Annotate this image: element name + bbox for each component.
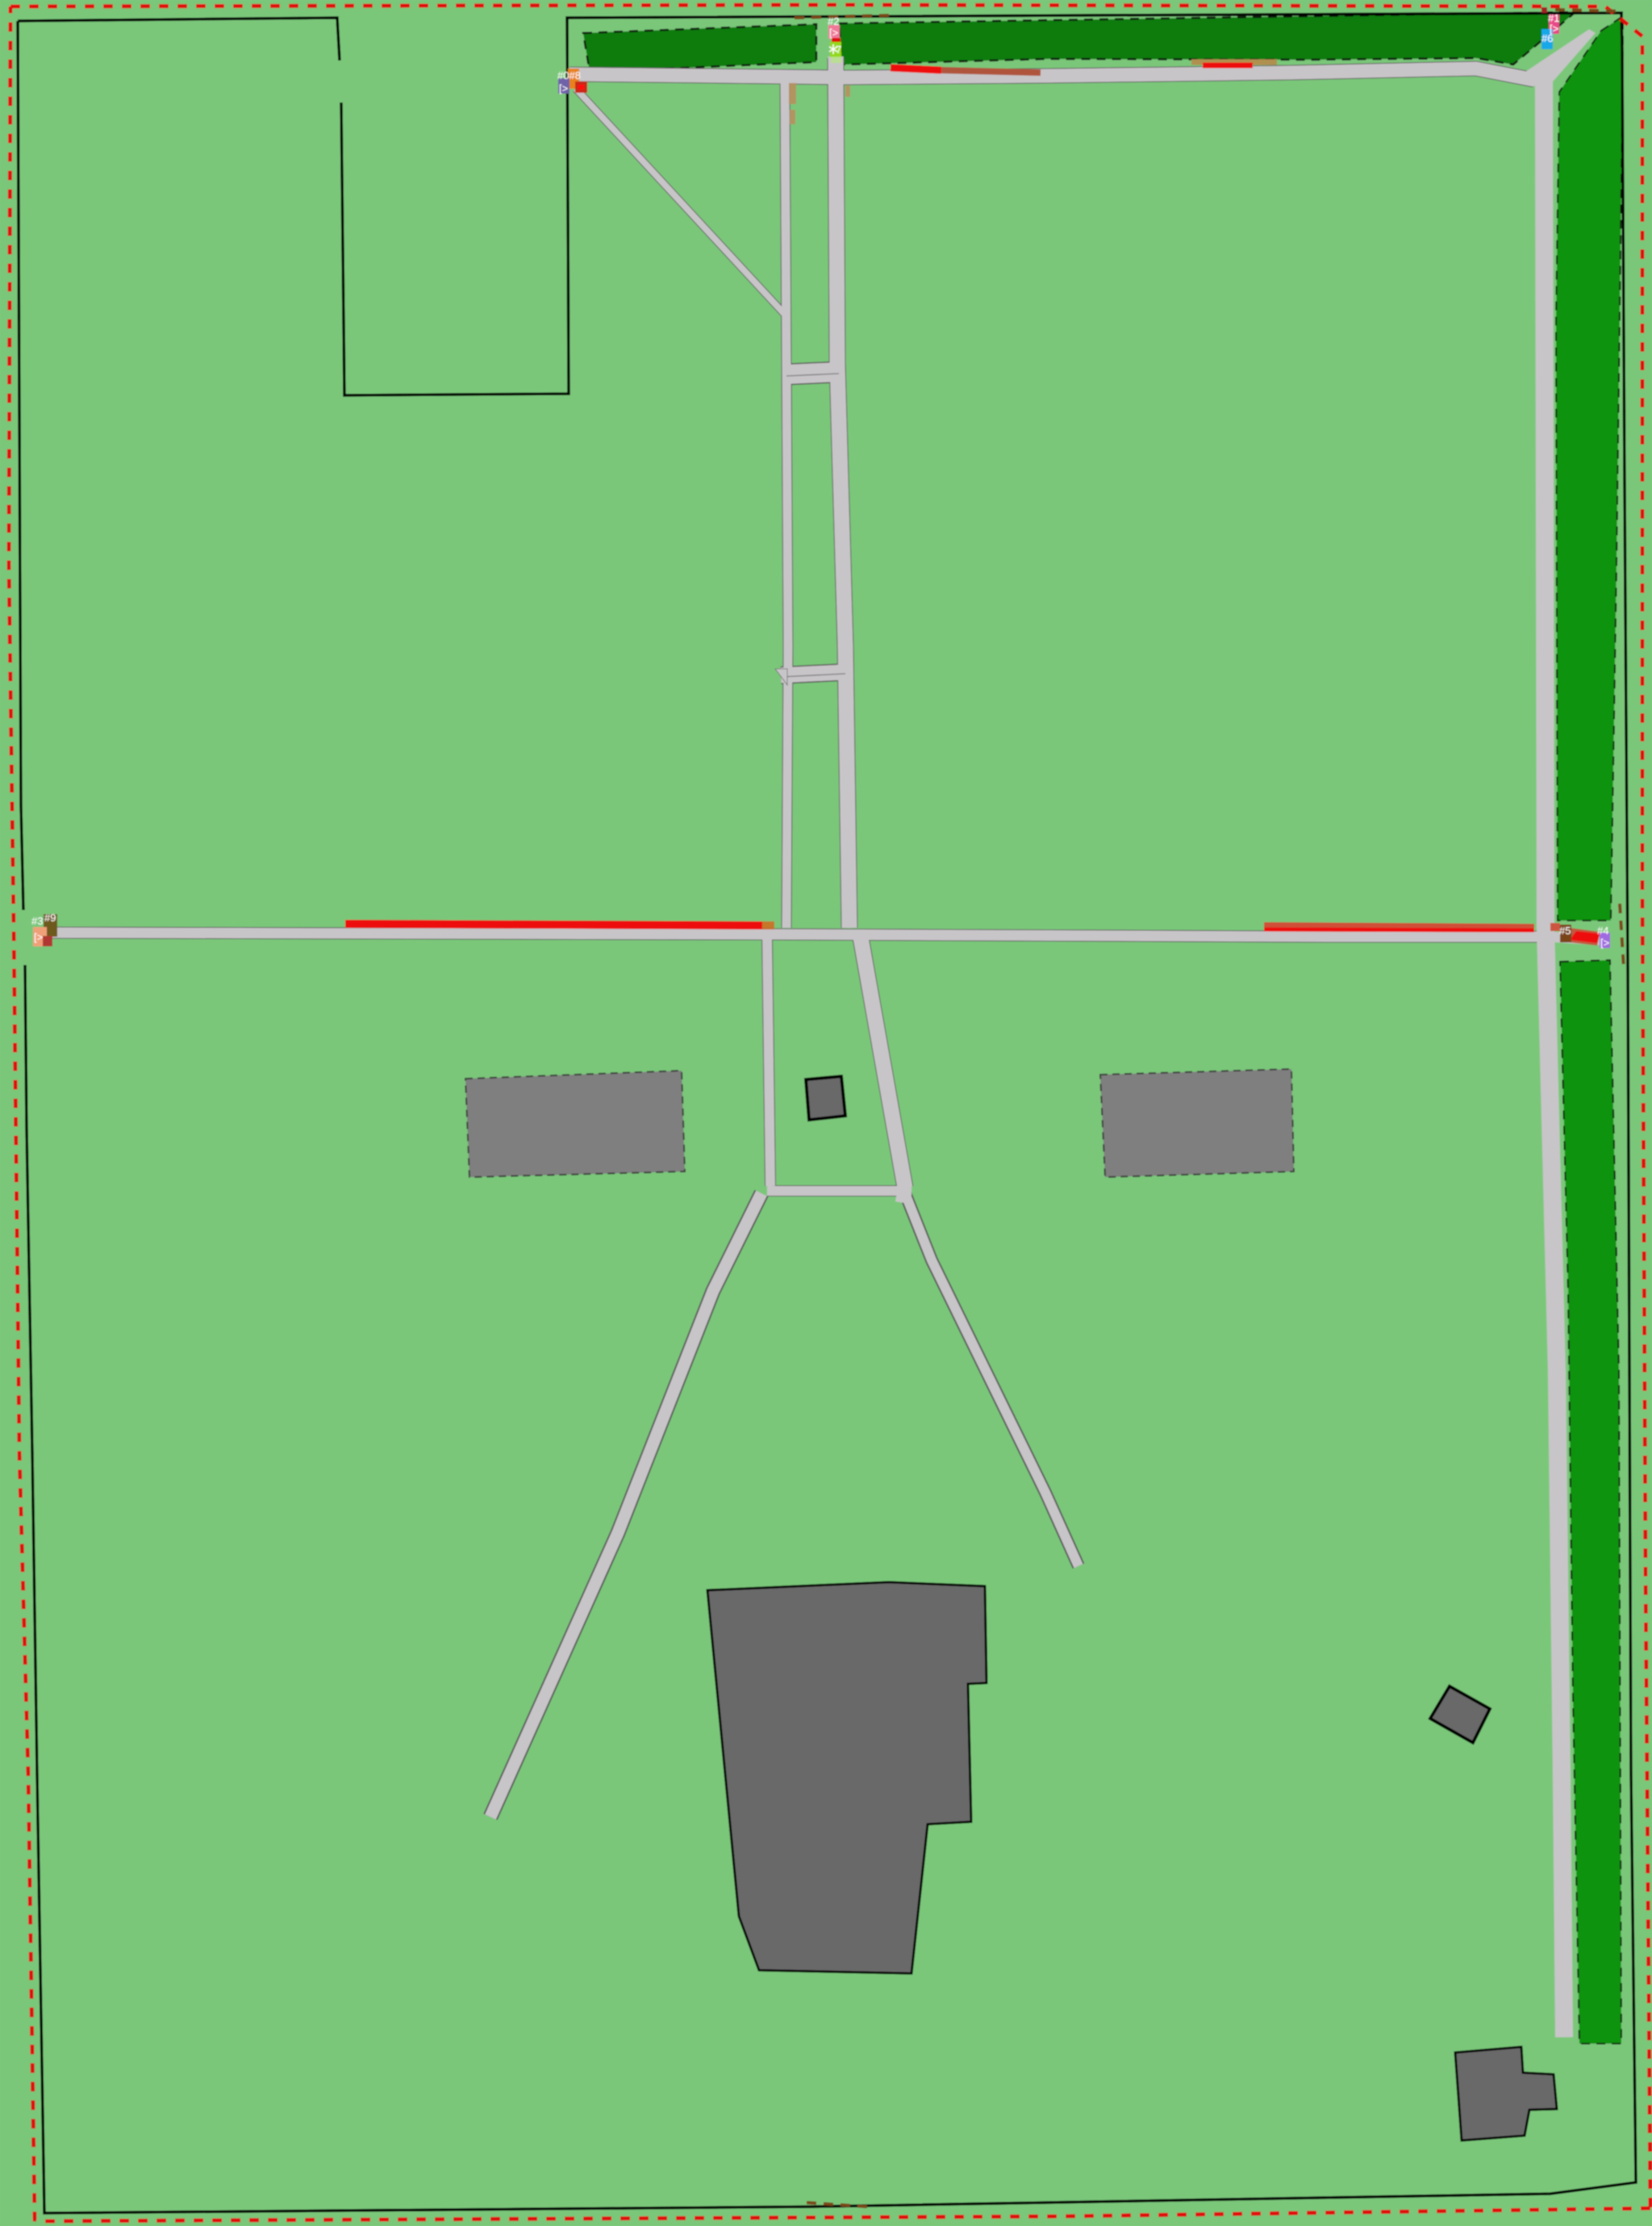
svg-text:#6: #6 (1541, 32, 1553, 44)
svg-text:[>: [> (34, 931, 43, 943)
svg-text:[>: [> (829, 27, 838, 39)
svg-text:#0#8: #0#8 (557, 69, 581, 81)
svg-text:#9: #9 (44, 912, 56, 924)
svg-text:#5: #5 (1559, 925, 1571, 937)
svg-text:7: 7 (836, 44, 841, 56)
svg-text:#2: #2 (828, 15, 839, 27)
svg-text:[>: [> (1600, 937, 1609, 949)
svg-text:#4: #4 (1597, 925, 1608, 937)
svg-text:[>: [> (559, 82, 568, 94)
svg-text:#3: #3 (31, 915, 43, 927)
